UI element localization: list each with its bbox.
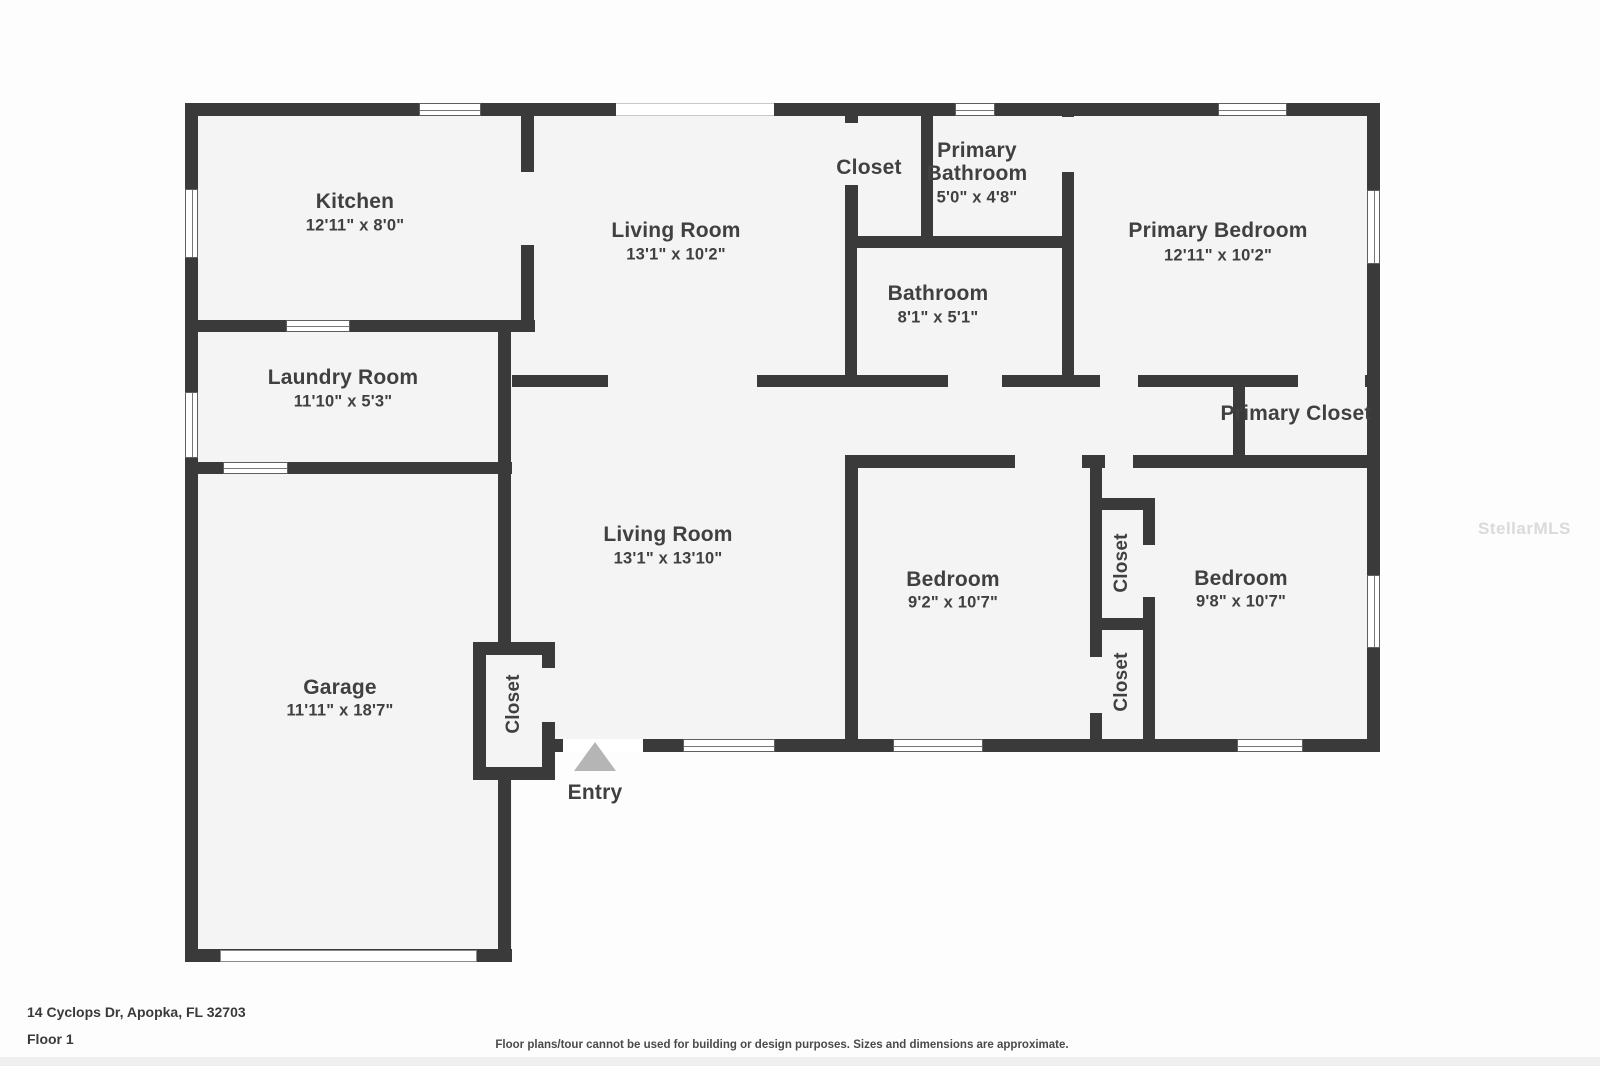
wall-bathroom-left (845, 248, 857, 387)
entry-label: Entry (568, 781, 623, 805)
room-label-primary-bathroom: Primary Bathroom (927, 139, 1028, 185)
room-dims-laundry-room: 11'10" x 5'3" (294, 393, 393, 412)
footer-band (0, 1057, 1600, 1066)
wall-kitchen-bottom (185, 320, 535, 332)
wall-hallway-top-b (757, 375, 1100, 387)
wall-closet-column-right (1143, 498, 1155, 752)
room-label-primary-bedroom: Primary Bedroom (1128, 219, 1307, 243)
address-text: 14 Cyclops Dr, Apopka, FL 32703 (27, 1004, 246, 1020)
room-label-living-room-bottom: Living Room (603, 523, 732, 547)
wall-kitchen-divider-b (521, 245, 534, 332)
room-label-closet-middle-lower: Closet (1111, 652, 1133, 711)
wall-top (185, 103, 1380, 116)
room-dims-bathroom: 8'1" x 5'1" (898, 309, 979, 328)
window-primary-bedroom-top (1218, 103, 1287, 116)
room-dims-kitchen: 12'11" x 8'0" (306, 217, 405, 236)
wall-garage-right-a (498, 320, 511, 642)
room-label-bathroom: Bathroom (888, 282, 989, 306)
wall-closet-bath-bottom (845, 236, 1074, 248)
entry-arrow-icon (574, 742, 616, 771)
room-label-kitchen: Kitchen (316, 190, 394, 214)
wall-hallway-top-a (512, 375, 608, 387)
disclaimer-text: Floor plans/tour cannot be used for buil… (420, 1039, 1144, 1051)
door-bedroom-left (1015, 455, 1082, 468)
window-kitchen-left (185, 189, 198, 258)
room-label-living-room-top: Living Room (611, 219, 740, 243)
window-laundry-bottom (223, 462, 288, 474)
primary-bathroom-line2: Bathroom (927, 162, 1028, 185)
garage-door (220, 950, 477, 962)
door-primary-bathroom (1062, 117, 1074, 172)
door-closet-lower (1090, 657, 1102, 713)
room-dims-bedroom-right: 9'8" x 10'7" (1196, 593, 1286, 612)
room-label-bedroom-left: Bedroom (906, 568, 1000, 592)
door-bathroom (948, 375, 1002, 387)
window-bedroom-left-south (893, 739, 983, 752)
room-label-closet-middle-upper: Closet (1111, 533, 1133, 592)
door-entry-closet (542, 668, 555, 722)
window-primary-bath-top (955, 103, 995, 116)
room-dims-bedroom-left: 9'2" x 10'7" (908, 594, 998, 613)
floor-plan: Kitchen 12'11" x 8'0" Living Room 13'1" … (0, 0, 1600, 1066)
room-label-primary-closet: Primary Closet (1220, 402, 1371, 426)
window-living-south (683, 739, 775, 752)
room-label-garage: Garage (303, 676, 377, 700)
wall-entry-closet-left (473, 642, 486, 780)
room-dims-primary-bedroom: 12'11" x 10'2" (1164, 247, 1272, 266)
window-kitchen-top (419, 103, 481, 116)
wall-bedroom-left-west (845, 455, 858, 752)
room-label-laundry-room: Laundry Room (268, 366, 419, 390)
room-label-bedroom-right: Bedroom (1194, 567, 1288, 591)
wall-primary-closet-left (1233, 387, 1245, 467)
patio-opening (616, 103, 774, 116)
primary-bathroom-line1: Primary (937, 139, 1017, 162)
watermark: StellarMLS (1478, 519, 1571, 539)
window-laundry-left (185, 392, 198, 458)
wall-garage-right-b (498, 780, 511, 962)
door-primary-closet (1298, 375, 1365, 387)
door-closet-upper (1143, 545, 1155, 597)
window-primary-bedroom-right (1367, 190, 1380, 264)
floor-label: Floor 1 (27, 1031, 74, 1047)
room-dims-primary-bathroom: 5'0" x 4'8" (937, 189, 1018, 208)
room-label-closet-entry: Closet (503, 674, 525, 733)
window-laundry-top (286, 320, 350, 332)
room-label-closet-top: Closet (836, 156, 901, 180)
door-bedroom-right (1105, 455, 1133, 468)
room-dims-garage: 11'11" x 18'7" (286, 702, 393, 721)
window-bedroom-right-east (1367, 575, 1380, 648)
room-dims-living-room-bottom: 13'1" x 13'10" (614, 550, 723, 569)
window-bedroom-right-south (1237, 739, 1303, 752)
wall-kitchen-divider-a (521, 103, 534, 172)
room-dims-living-room-top: 13'1" x 10'2" (626, 246, 726, 265)
